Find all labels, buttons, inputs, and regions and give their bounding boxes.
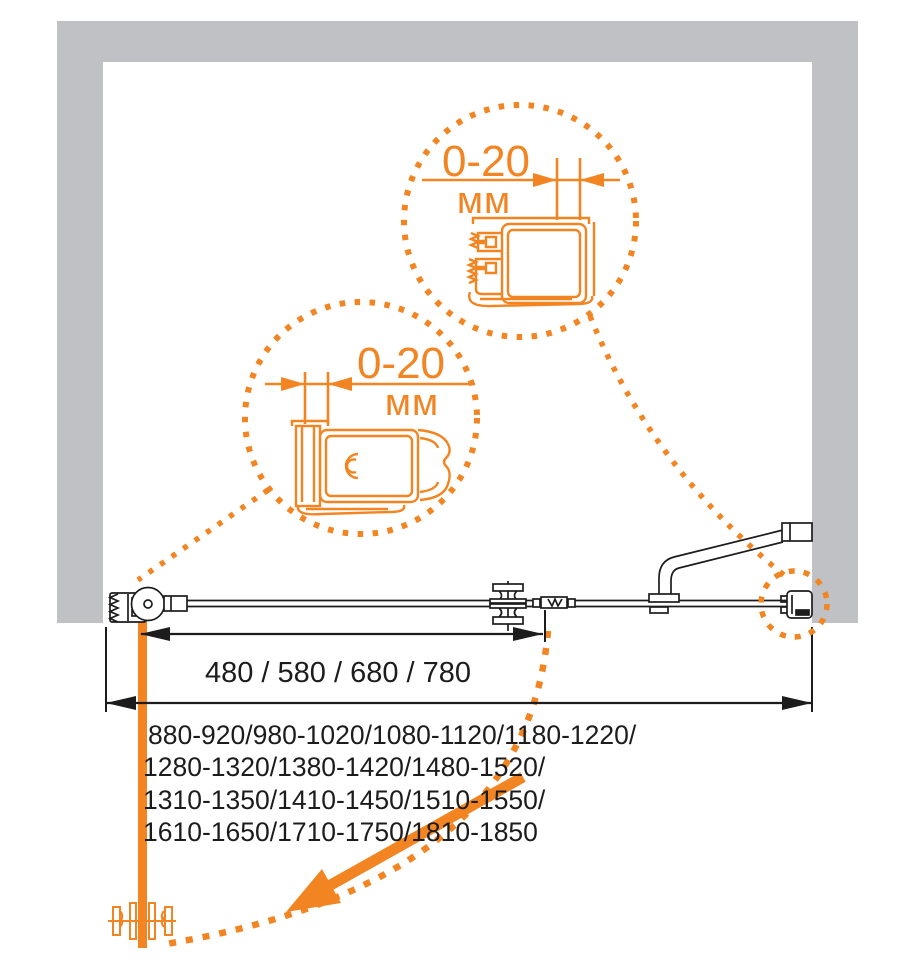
dimension-door-width: 480 / 580 / 680 / 780 xyxy=(140,610,545,689)
magnet-joint-icon xyxy=(533,597,575,608)
wall-right xyxy=(812,21,858,623)
detail-left-value: 0-20 xyxy=(357,339,445,388)
door-open-line xyxy=(138,619,147,948)
diagram-canvas: 480 / 580 / 680 / 780 880-920/980-1020/1… xyxy=(0,0,921,976)
overall-width-line-1: 880-920/980-1020/1080-1120/1180-1220/ xyxy=(148,720,637,750)
detail-top-value: 0-20 xyxy=(442,137,530,186)
detail-left-unit: мм xyxy=(385,382,439,424)
hinge-icon xyxy=(132,588,188,621)
wall-left xyxy=(57,21,103,623)
overall-width-line-3: 1310-1350/1410-1450/1510-1550/ xyxy=(143,785,546,815)
leader-left-circle xyxy=(138,490,268,580)
wall-top xyxy=(57,21,858,62)
overall-width-line-4: 1610-1650/1710-1750/1810-1850 xyxy=(143,817,538,847)
detail-circle-left: 0-20 мм xyxy=(245,302,477,534)
callout-leaders xyxy=(138,316,827,637)
overall-width-label: 880-920/980-1020/1080-1120/1180-1220/ 12… xyxy=(143,720,637,847)
overall-width-line-2: 1280-1320/1380-1420/1480-1520/ xyxy=(143,752,546,782)
leader-top-circle xyxy=(590,316,790,580)
door-width-label: 480 / 580 / 680 / 780 xyxy=(205,657,471,689)
detail-circle-top: 0-20 мм xyxy=(404,105,636,337)
profile-section-left-icon xyxy=(292,421,450,514)
knob-icon xyxy=(490,581,526,631)
wall-frame xyxy=(57,21,858,623)
door-assembly xyxy=(110,523,812,631)
detail-top-unit: мм xyxy=(457,180,511,222)
installation-diagram: 480 / 580 / 680 / 780 880-920/980-1020/1… xyxy=(0,0,921,976)
wall-profile-right-icon xyxy=(781,591,812,618)
profile-section-top-icon xyxy=(469,218,594,306)
